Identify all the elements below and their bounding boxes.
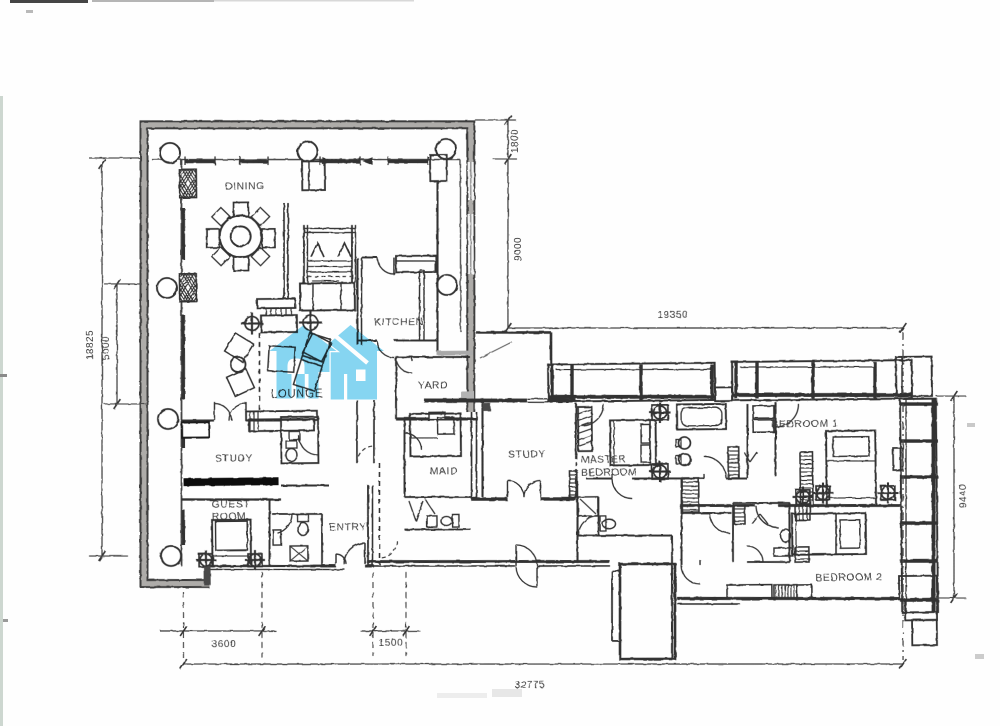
svg-text:BEDROOM 2: BEDROOM 2 [815,572,882,584]
svg-text:19350: 19350 [657,310,688,321]
svg-text:1800: 1800 [510,129,521,153]
svg-text:YARD: YARD [418,380,448,391]
svg-text:STUDY: STUDY [508,449,546,460]
svg-text:1500: 1500 [379,638,404,649]
svg-text:DINING: DINING [225,181,265,192]
svg-text:5000: 5000 [101,336,112,360]
svg-text:18825: 18825 [85,330,96,360]
svg-text:MASTER: MASTER [581,454,626,465]
svg-text:3600: 3600 [212,639,237,650]
svg-text:BEDROOM 1: BEDROOM 1 [771,419,838,431]
svg-text:32775: 32775 [515,680,546,691]
svg-text:GUEST: GUEST [212,499,251,510]
svg-text:9000: 9000 [513,237,524,261]
svg-text:9440: 9440 [958,484,969,508]
svg-text:ENTRY: ENTRY [329,522,367,533]
svg-text:BEDROOM: BEDROOM [581,467,637,479]
svg-text:STUDY: STUDY [215,453,253,464]
svg-text:KITCHEN: KITCHEN [374,317,424,329]
svg-text:MAID: MAID [430,466,458,477]
